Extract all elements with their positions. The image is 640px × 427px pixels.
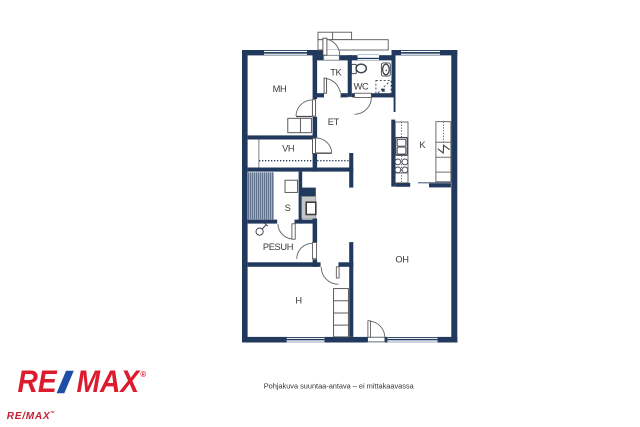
svg-text:TM: TM (50, 410, 55, 414)
svg-text:S: S (285, 203, 291, 213)
svg-text:TK: TK (330, 68, 342, 78)
svg-text:PESUH: PESUH (263, 242, 293, 252)
svg-text:Pohjakuva suuntaa-antava – ei: Pohjakuva suuntaa-antava – ei mittakaava… (264, 381, 415, 390)
svg-text:MH: MH (273, 84, 287, 94)
svg-text:RE: RE (18, 365, 58, 400)
svg-text:WC: WC (354, 82, 369, 92)
svg-text:MAX: MAX (77, 365, 142, 400)
svg-text:H: H (295, 296, 301, 306)
svg-text:VH: VH (282, 144, 294, 154)
svg-text:ET: ET (328, 117, 340, 127)
svg-text:OH: OH (395, 255, 408, 265)
svg-text:®: ® (140, 370, 146, 379)
svg-text:RE/MAX: RE/MAX (7, 411, 51, 422)
